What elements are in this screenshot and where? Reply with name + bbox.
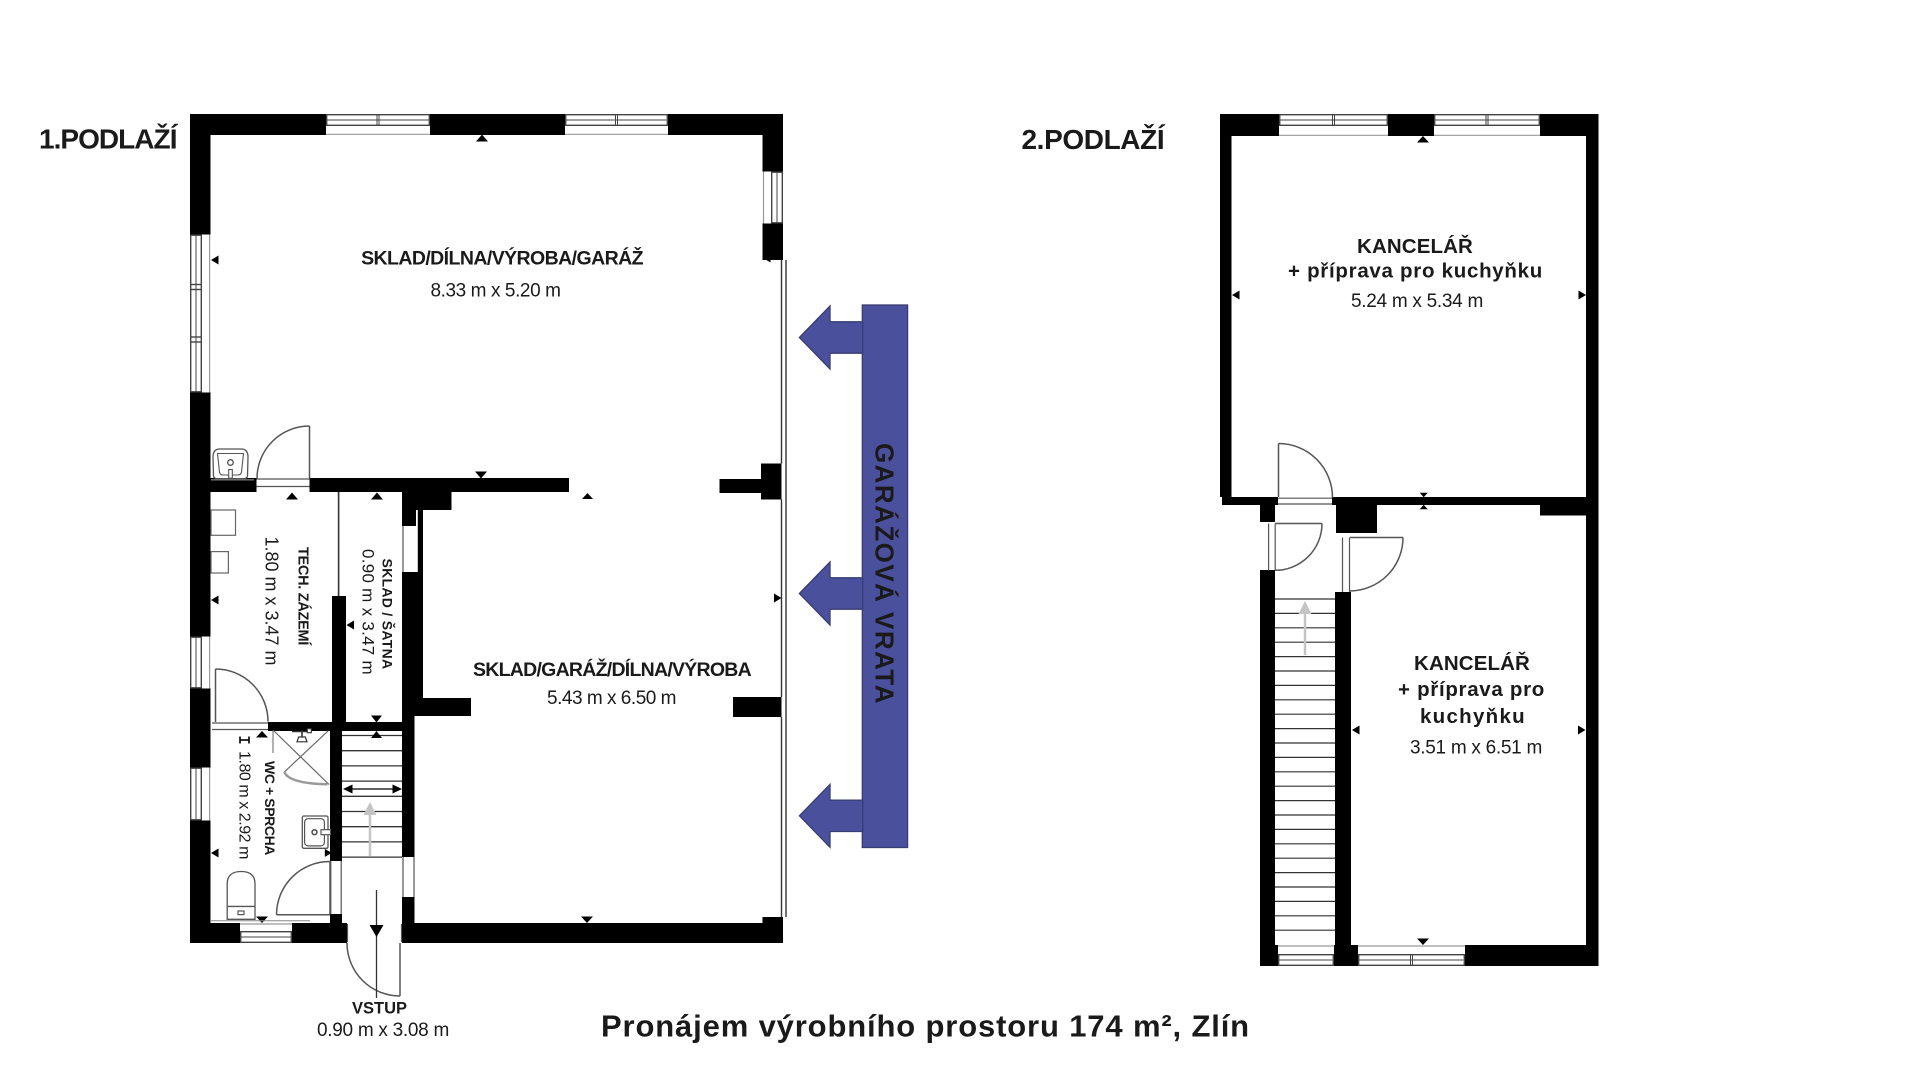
svg-text:SKLAD/DÍLNA/VÝROBA/GARÁŽ: SKLAD/DÍLNA/VÝROBA/GARÁŽ bbox=[361, 246, 643, 270]
svg-text:SKLAD / ŠATNA: SKLAD / ŠATNA bbox=[380, 559, 397, 670]
svg-text:TECH. ZÁZEMÍ: TECH. ZÁZEMÍ bbox=[295, 547, 312, 646]
svg-text:1.PODLAŽÍ: 1.PODLAŽÍ bbox=[39, 124, 179, 155]
svg-text:WC + SPRCHA: WC + SPRCHA bbox=[262, 761, 278, 855]
svg-text:0.90 m x 3.08 m: 0.90 m x 3.08 m bbox=[317, 1020, 449, 1041]
svg-text:Pronájem výrobního prostoru 17: Pronájem výrobního prostoru 174 m², Zlín bbox=[601, 1009, 1250, 1044]
svg-text:5.43 m x 6.50 m: 5.43 m x 6.50 m bbox=[547, 688, 676, 709]
svg-text:VSTUP: VSTUP bbox=[352, 1000, 407, 1018]
svg-text:8.33 m x 5.20 m: 8.33 m x 5.20 m bbox=[430, 281, 560, 302]
svg-text:SKLAD/GARÁŽ/DÍLNA/VÝROBA: SKLAD/GARÁŽ/DÍLNA/VÝROBA bbox=[473, 657, 752, 681]
svg-text:5.24 m x 5.34 m: 5.24 m x 5.34 m bbox=[1351, 291, 1483, 312]
svg-text:0.90 m x 3.47 m: 0.90 m x 3.47 m bbox=[359, 549, 378, 675]
svg-text:KANCELÁŘ: KANCELÁŘ bbox=[1414, 651, 1530, 675]
svg-text:KANCELÁŘ: KANCELÁŘ bbox=[1357, 234, 1473, 258]
svg-text:GARÁŽOVÁ VRATA: GARÁŽOVÁ VRATA bbox=[870, 443, 900, 705]
svg-text:+ příprava pro: + příprava pro bbox=[1398, 678, 1545, 701]
svg-text:3.51 m x 6.51 m: 3.51 m x 6.51 m bbox=[1410, 738, 1542, 759]
svg-text:kuchyňku: kuchyňku bbox=[1420, 705, 1526, 728]
svg-text:+ příprava pro kuchyňku: + příprava pro kuchyňku bbox=[1288, 260, 1543, 283]
svg-text:1.80 m x 2.92 m: 1.80 m x 2.92 m bbox=[236, 751, 253, 859]
svg-text:2.PODLAŽÍ: 2.PODLAŽÍ bbox=[1022, 124, 1166, 155]
svg-text:1.80 m x 3.47 m: 1.80 m x 3.47 m bbox=[262, 536, 282, 665]
